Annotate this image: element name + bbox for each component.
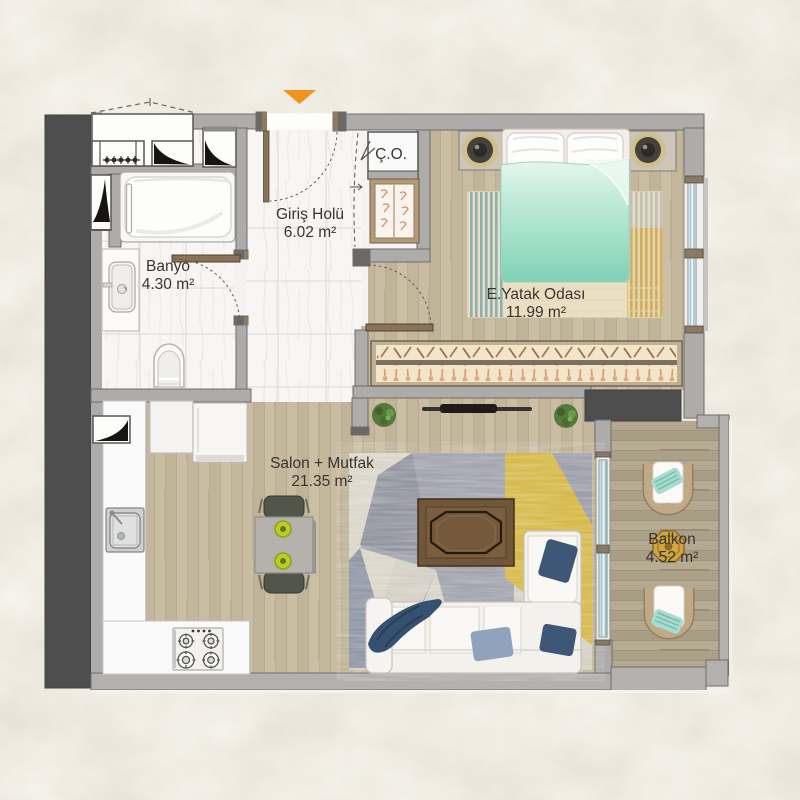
svg-text:4.30 m²: 4.30 m² bbox=[142, 276, 195, 293]
svg-text:11.99 m²: 11.99 m² bbox=[506, 304, 566, 321]
svg-text:Banyo: Banyo bbox=[146, 258, 190, 275]
svg-text:E.Yatak Odası: E.Yatak Odası bbox=[487, 286, 586, 303]
svg-text:4.52 m²: 4.52 m² bbox=[646, 549, 699, 566]
svg-text:Ç.O.: Ç.O. bbox=[375, 146, 407, 163]
svg-text:Balkon: Balkon bbox=[648, 531, 695, 548]
svg-text:Giriş Holü: Giriş Holü bbox=[276, 206, 344, 223]
svg-text:Salon + Mutfak: Salon + Mutfak bbox=[270, 455, 374, 472]
svg-text:21.35 m²: 21.35 m² bbox=[291, 473, 352, 490]
svg-text:6.02 m²: 6.02 m² bbox=[284, 224, 337, 241]
